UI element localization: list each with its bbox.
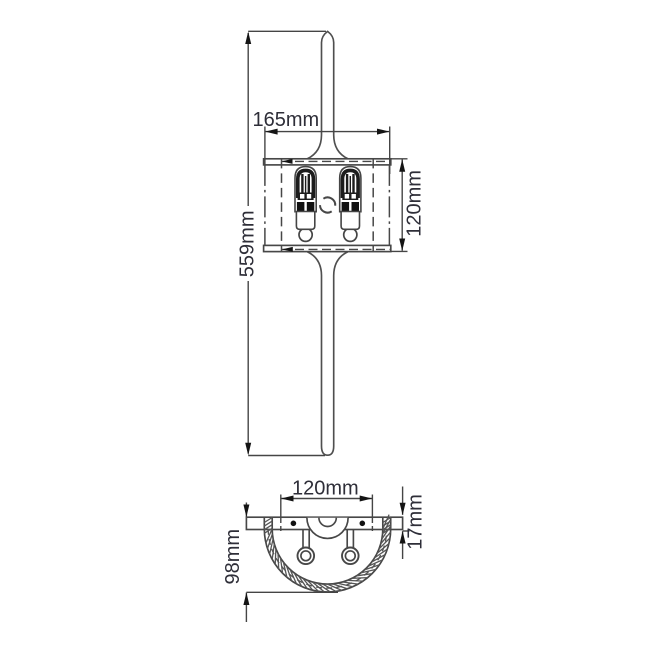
svg-text:120mm: 120mm — [292, 478, 359, 500]
svg-text:165mm: 165mm — [253, 109, 320, 131]
svg-text:559mm: 559mm — [237, 210, 259, 277]
svg-text:17mm: 17mm — [405, 494, 427, 550]
svg-text:98mm: 98mm — [222, 529, 244, 585]
svg-text:120mm: 120mm — [404, 170, 426, 237]
